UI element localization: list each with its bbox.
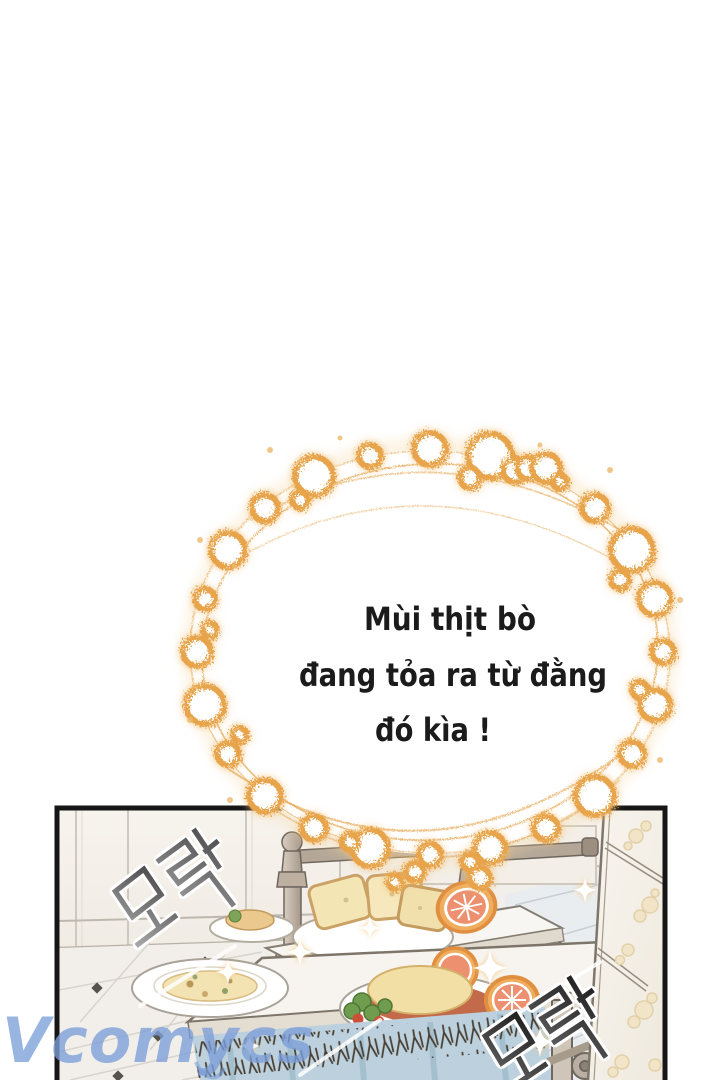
comic-page: Vcomycs: [0, 0, 720, 1080]
bubble-text-line-2: đang tỏa ra từ đằng: [299, 656, 607, 694]
comic-art: Vcomycs: [0, 0, 720, 1080]
watermark: Vcomycs: [2, 1004, 315, 1077]
bubble-text-line-3: đó kìa !: [375, 711, 491, 749]
bubble-text-line-1: Mùi thịt bò: [364, 600, 536, 638]
watermark-text: Vcomycs: [2, 1004, 315, 1077]
